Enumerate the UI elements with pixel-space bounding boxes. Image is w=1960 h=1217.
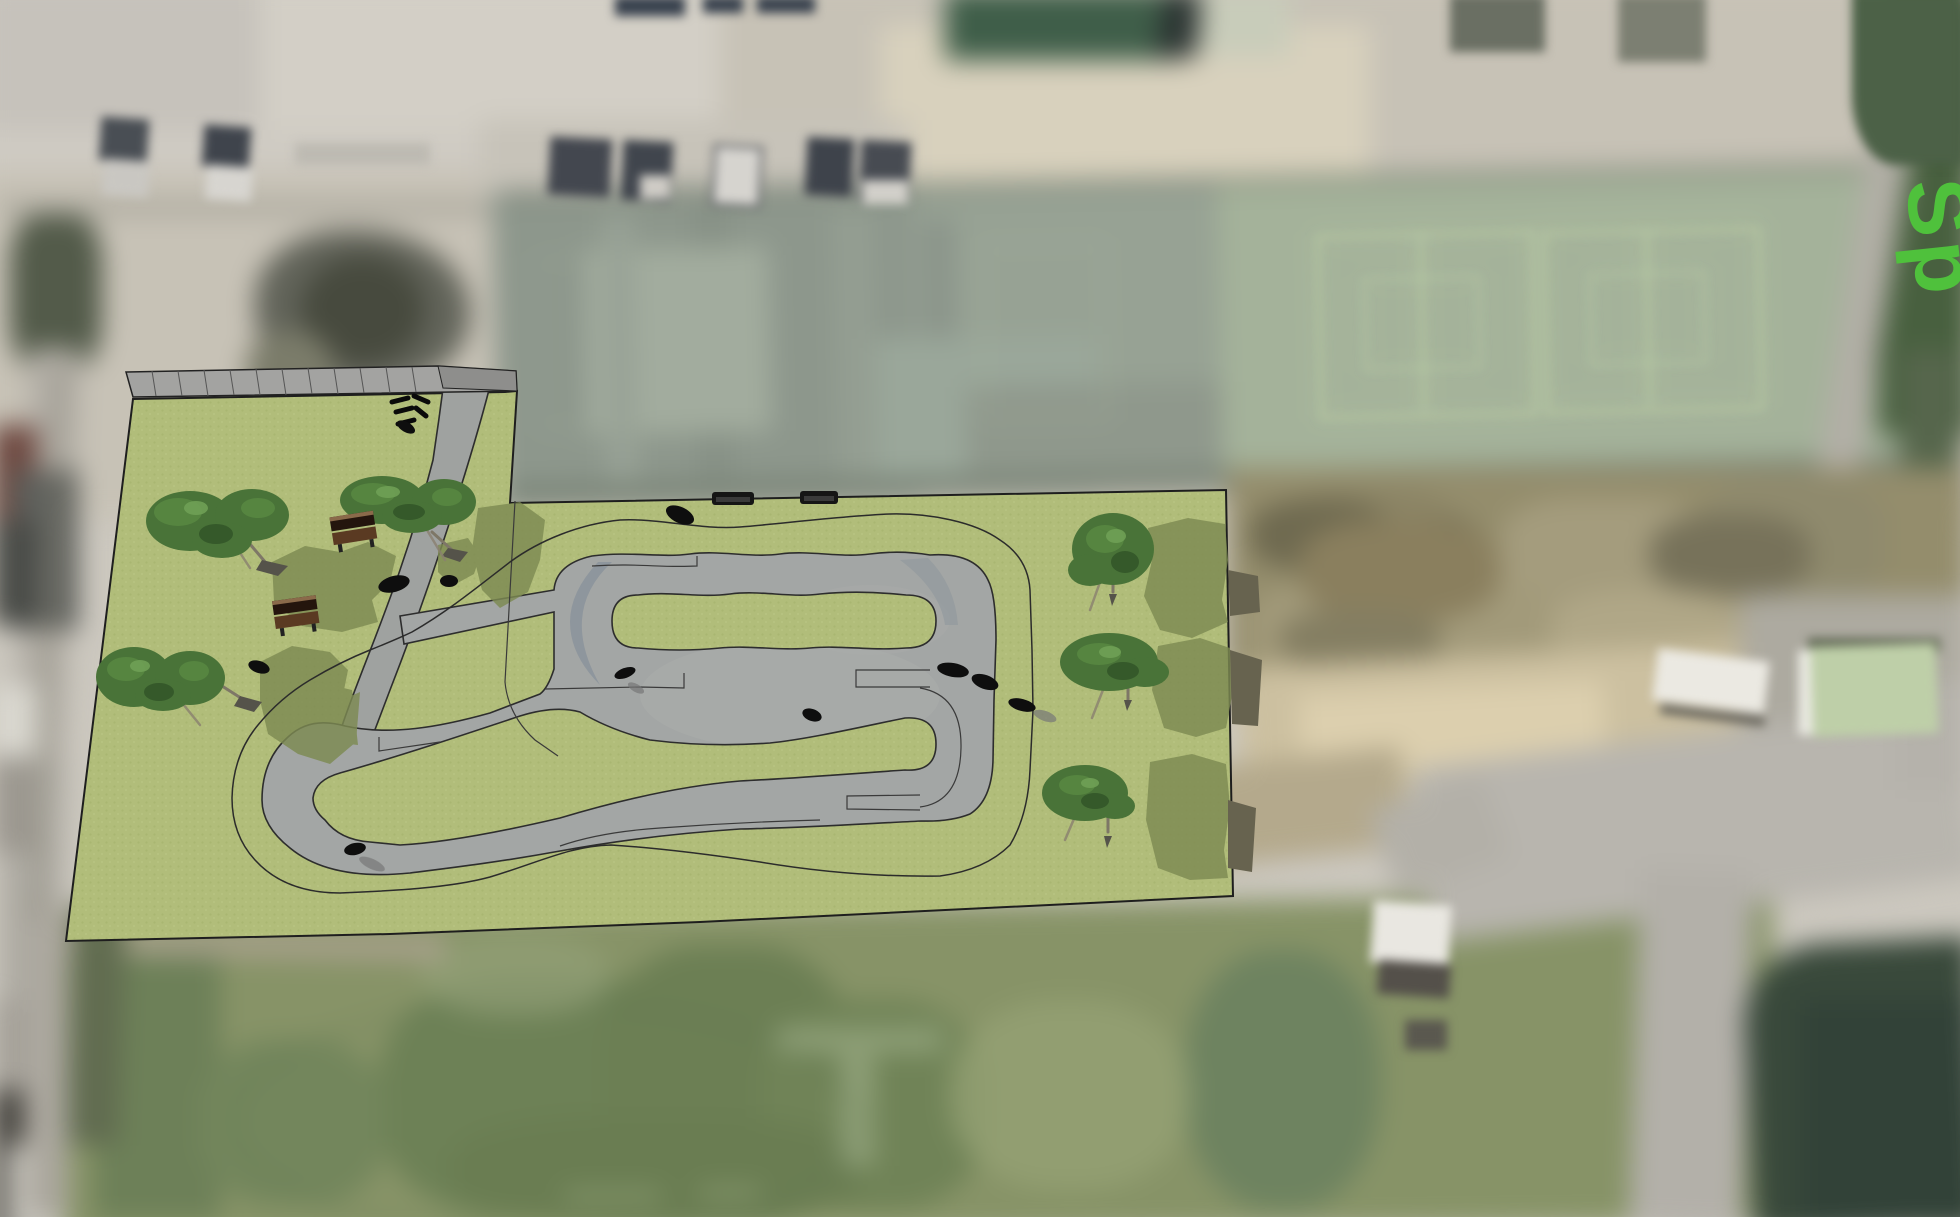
svg-text:Sp: Sp — [1887, 174, 1960, 303]
